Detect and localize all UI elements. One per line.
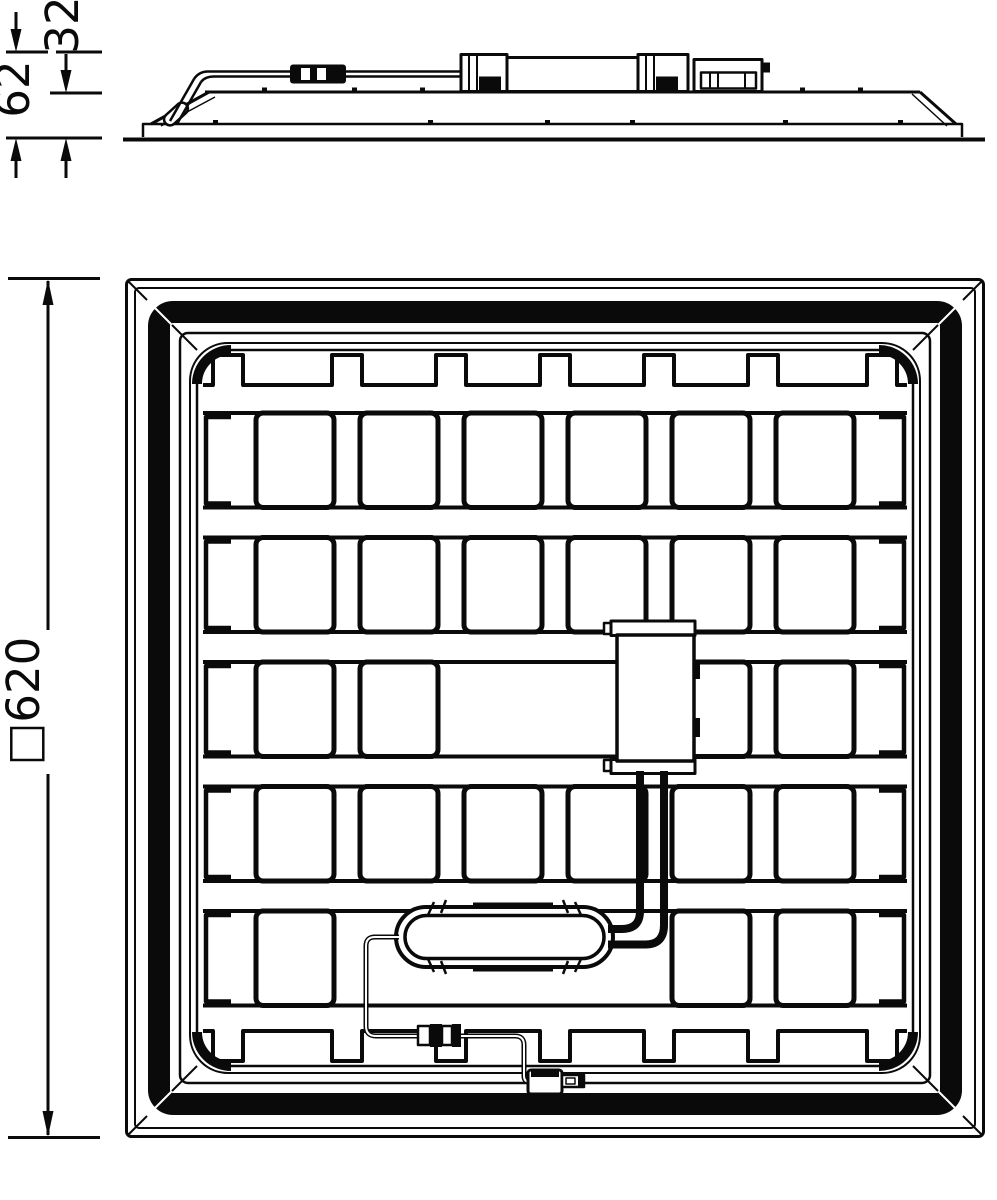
frame-bevel-edge	[180, 333, 930, 1083]
cable-connector-side	[290, 65, 346, 84]
led-module-cell	[568, 413, 646, 508]
dim-label-32: 32	[36, 0, 89, 54]
dimension-drawing-page: 62 32	[0, 0, 997, 1200]
inline-connector	[418, 1024, 461, 1047]
arrowhead	[11, 138, 22, 161]
led-module-cell	[776, 538, 854, 633]
driver-clip-right	[638, 55, 688, 92]
driver-clip-left	[461, 55, 507, 92]
led-module-cell	[568, 787, 646, 882]
side-profile-view	[123, 55, 985, 140]
led-module-cell	[360, 787, 438, 882]
led-module-cell	[672, 911, 750, 1006]
dim-label-62: 62	[0, 60, 40, 117]
led-module-cell	[256, 787, 334, 882]
frame-plate	[143, 124, 962, 137]
led-module-cell	[464, 538, 542, 633]
led-module-cell	[464, 787, 542, 882]
led-module-cell	[360, 662, 438, 757]
led-module-cell	[776, 787, 854, 882]
arrowhead	[43, 1111, 54, 1137]
driver-side-tab	[693, 663, 700, 679]
terminal-block-side	[694, 60, 770, 92]
led-module-cell	[776, 662, 854, 757]
strain-relief-bracket	[396, 900, 613, 974]
mounting-clip	[162, 79, 201, 128]
led-module-cell	[256, 538, 334, 633]
arrowhead	[61, 70, 72, 93]
driver-cables	[608, 771, 664, 945]
driver-box	[604, 621, 700, 774]
rear-view	[127, 280, 984, 1137]
technical-drawing: 62 32	[0, 0, 997, 1200]
arrowhead	[43, 280, 54, 306]
frame-black-band	[159, 312, 951, 1104]
led-module-cell	[776, 911, 854, 1006]
dim-label-620: □620	[0, 637, 50, 765]
dimension-side-recess-depth: 32	[36, 0, 102, 178]
driver-body	[617, 635, 694, 761]
led-module-cell	[672, 787, 750, 882]
arrowhead	[61, 138, 72, 161]
led-module-cell	[360, 538, 438, 633]
driver-side-tab	[693, 718, 700, 737]
led-module-cell	[776, 413, 854, 508]
dimension-rear-size: □620	[0, 279, 100, 1138]
led-module-cell	[568, 538, 646, 633]
arrowhead	[11, 29, 22, 52]
led-module-cell	[360, 413, 438, 508]
driver-body	[505, 58, 640, 92]
led-module-cell	[256, 662, 334, 757]
led-module-cell	[464, 413, 542, 508]
led-module-cell	[672, 538, 750, 633]
driver-unit-side	[461, 55, 770, 92]
led-module-cell	[672, 413, 750, 508]
led-module-cell	[256, 413, 334, 508]
led-module-cell	[256, 911, 334, 1006]
top-castellation	[203, 355, 907, 385]
bottom-castellation	[203, 1031, 907, 1061]
right-slope	[920, 92, 956, 124]
